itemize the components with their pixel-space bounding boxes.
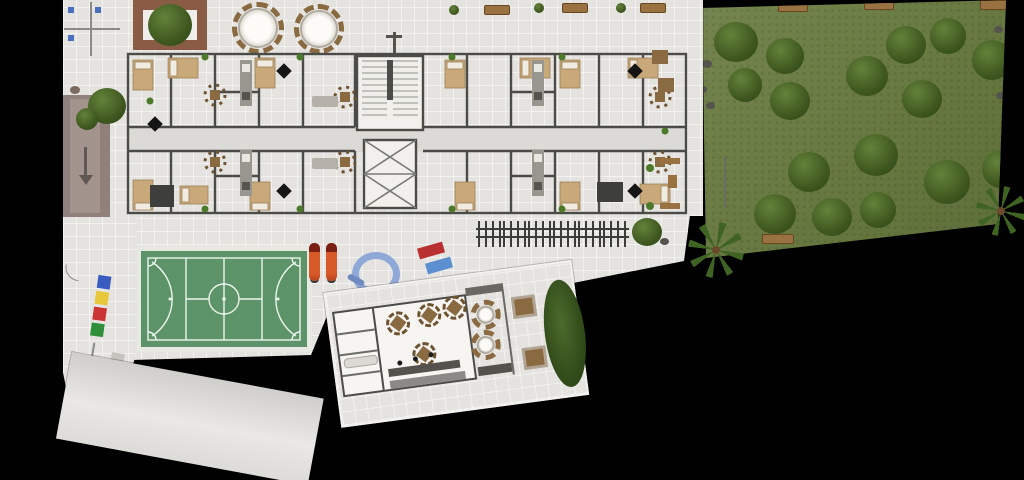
kitchen-icon: [240, 150, 252, 196]
table-icon: [276, 63, 292, 79]
bed-icon: [445, 60, 465, 88]
car-icon: [89, 391, 147, 426]
kitchen-icon: [532, 60, 544, 106]
shrub-icon: [770, 82, 810, 120]
bike-rack-icon: [553, 221, 577, 247]
party-table-icon: [448, 301, 461, 314]
shrub-icon: [930, 18, 966, 54]
bed-icon: [168, 58, 198, 78]
shrub-icon: [754, 194, 796, 234]
bed-icon: [640, 184, 670, 204]
property-line: [684, 20, 687, 242]
party-table-icon: [391, 317, 404, 330]
party-table-icon: [423, 308, 436, 321]
ramp-arrow-stem: [84, 147, 87, 175]
building-floor-plan: [63, 0, 703, 216]
bench-icon: [864, 0, 894, 10]
toilet-icon: [340, 317, 349, 328]
sink-icon: [370, 377, 377, 384]
shrub-icon: [860, 192, 896, 228]
bench-table-icon: [343, 354, 378, 368]
bike-rack-icon: [603, 221, 627, 247]
shrub-icon: [714, 22, 758, 62]
rock-icon: [996, 92, 1004, 99]
rock-icon: [994, 26, 1003, 33]
shrub-icon: [812, 198, 852, 236]
rock-icon: [706, 102, 715, 109]
shrub-icon: [728, 68, 762, 102]
locker-yellow: [95, 291, 110, 306]
shrub-icon: [924, 160, 970, 204]
bed-icon: [255, 58, 275, 88]
party-room: [332, 294, 477, 397]
kitchen-icon: [532, 150, 544, 196]
stair-rail: [724, 156, 726, 208]
locker-green: [90, 322, 105, 337]
bed-icon: [560, 60, 580, 88]
shrub-icon: [766, 38, 804, 74]
bike-rack-icon: [503, 221, 527, 247]
stool-icon: [397, 360, 403, 366]
shrub-icon: [972, 40, 1012, 80]
table-icon: [276, 183, 292, 199]
fridge-icon: [453, 357, 466, 370]
bench-icon: [762, 234, 794, 244]
terrace-table-icon: [525, 348, 545, 366]
shrub-icon: [846, 56, 888, 96]
rock-icon: [660, 238, 669, 245]
shrub-icon: [788, 152, 830, 192]
service-counter: [478, 363, 513, 376]
toilet-icon: [348, 378, 357, 389]
round-table-icon: [476, 305, 496, 325]
shrub-icon: [632, 218, 662, 246]
tree-icon: [76, 108, 98, 130]
sports-court: [136, 246, 312, 352]
palm-tree-icon: [976, 186, 1024, 236]
watermark: Powered by ARQUIS: [944, 460, 1024, 480]
shrub-icon: [886, 26, 926, 64]
floor-plan-canvas: Powered by ARQUIS: [0, 0, 1024, 480]
sink-icon: [362, 315, 369, 322]
driveway: [56, 352, 324, 480]
stair-core: [357, 56, 423, 130]
locker-blue: [97, 275, 112, 290]
bench-icon: [980, 0, 1008, 10]
bed-icon: [133, 60, 153, 90]
bed-icon: [180, 186, 208, 204]
shrub-icon: [902, 80, 942, 118]
bed-icon: [455, 182, 475, 210]
locker-red: [92, 307, 107, 322]
kitchen-icon: [240, 60, 252, 106]
stall-divider: [337, 329, 375, 336]
round-table-icon: [476, 335, 496, 355]
terrace-table-icon: [514, 297, 534, 315]
bike-rack-icon: [528, 221, 552, 247]
rock-icon: [70, 86, 80, 94]
punching-bag-icon: [309, 243, 320, 281]
party-room-group: [327, 245, 587, 445]
down-arrow-icon: [79, 175, 93, 185]
elevators: [364, 140, 416, 208]
bed-icon: [250, 182, 270, 210]
stall-divider: [342, 370, 380, 377]
shrub-icon: [854, 134, 898, 176]
bike-rack-icon: [578, 221, 602, 247]
garden: [696, 0, 1008, 262]
shrub-icon: [982, 150, 1020, 188]
bench-icon: [778, 2, 808, 12]
car-icon: [196, 423, 260, 461]
